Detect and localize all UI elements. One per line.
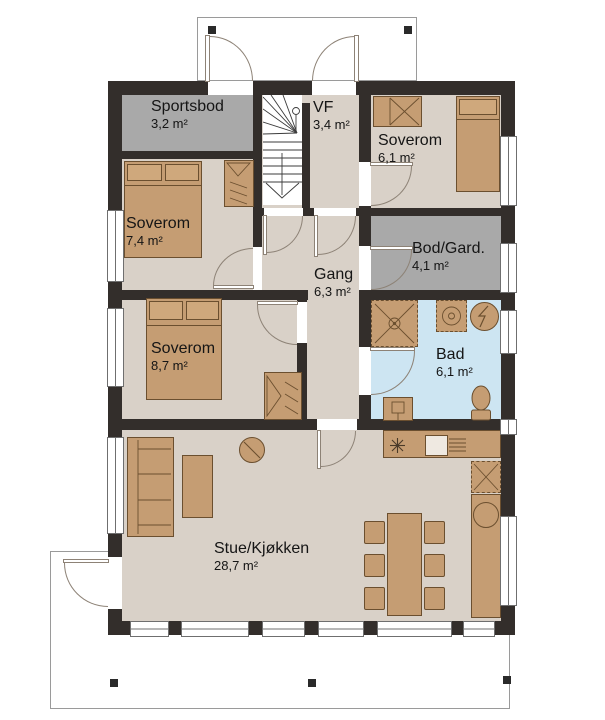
round-basin [473, 502, 499, 528]
window [181, 621, 249, 637]
door-opening [359, 162, 371, 206]
wall-stair-left [253, 95, 262, 247]
chair [424, 521, 445, 544]
room-label-bad: Bad 6,1 m² [436, 345, 473, 380]
pillow [165, 164, 199, 181]
door-opening [312, 81, 356, 95]
pillow [459, 99, 497, 115]
window [500, 516, 517, 606]
room-name: Bad [436, 345, 473, 364]
room-area: 7,4 m² [126, 233, 190, 249]
room-label-stue-kjokken: Stue/Kjøkken 28,7 m² [214, 539, 309, 574]
window [262, 621, 305, 637]
staircase-icon [263, 95, 302, 205]
room-area: 6,1 m² [378, 150, 442, 166]
room-name: Sportsbod [151, 97, 224, 116]
window [377, 621, 452, 637]
room-name: Soverom [378, 131, 442, 150]
window [130, 621, 169, 637]
room-area: 8,7 m² [151, 358, 215, 374]
chair [424, 554, 445, 577]
door-opening [317, 419, 357, 430]
window [463, 621, 495, 637]
door-opening [359, 347, 371, 395]
room-name: Gang [314, 265, 353, 284]
bathroom-sink-icon [383, 397, 413, 421]
terrace-post [503, 676, 511, 684]
wall-bad-top [359, 290, 515, 300]
door-opening [253, 247, 262, 290]
room-label-bod-gard: Bod/Gard. 4,1 m² [412, 239, 485, 274]
water-heater-bolt-icon [470, 302, 499, 331]
wall-stair-right [302, 103, 310, 208]
room-name: Soverom [126, 214, 190, 233]
coffee-table [182, 455, 213, 518]
room-area: 3,2 m² [151, 116, 224, 132]
porch-post [404, 26, 412, 34]
terrace-post [110, 679, 118, 687]
window [107, 308, 124, 387]
room-label-soverom-sw: Soverom 8,7 m² [151, 339, 215, 374]
exterior-wall-bottom [108, 621, 515, 635]
door-opening [264, 208, 303, 216]
floor-plan: Sportsbod 3,2 m² VF 3,4 m² Soverom 6,1 m… [0, 0, 605, 720]
window [107, 210, 124, 282]
dining-table [387, 513, 422, 616]
room-name: Soverom [151, 339, 215, 358]
wall-soverom-ne-bottom [359, 208, 515, 216]
shower-icon [371, 300, 418, 347]
wardrobe-icon [224, 160, 254, 207]
sofa-lines-icon [127, 437, 174, 537]
chair [364, 554, 385, 577]
pillow [127, 164, 162, 181]
pillow [149, 301, 183, 320]
washing-machine-icon [436, 300, 467, 332]
wall-stue-top-left [108, 419, 318, 430]
door-opening [297, 302, 307, 343]
window [500, 310, 517, 354]
wardrobe-icon [373, 96, 422, 127]
chair [424, 587, 445, 610]
door-opening [208, 81, 253, 95]
room-label-gang: Gang 6,3 m² [314, 265, 353, 300]
room-name: Stue/Kjøkken [214, 539, 309, 558]
wardrobe-icon [264, 372, 302, 420]
room-label-soverom-w: Soverom 7,4 m² [126, 214, 190, 249]
pillow [186, 301, 219, 320]
room-name: Bod/Gard. [412, 239, 485, 258]
drainboard-icon [449, 437, 467, 455]
door-opening [314, 208, 356, 216]
cooktop-icon [389, 437, 406, 454]
bed-sheet-line [124, 185, 202, 186]
room-area: 6,3 m² [314, 284, 353, 300]
porch-post [208, 26, 216, 34]
window [500, 136, 517, 206]
window [318, 621, 364, 637]
bed-sheet-line [456, 119, 500, 120]
room-area: 3,4 m² [313, 117, 350, 133]
door-opening [359, 246, 371, 290]
chair [364, 521, 385, 544]
room-area: 28,7 m² [214, 558, 309, 574]
window [500, 243, 517, 293]
door-opening [108, 557, 122, 609]
room-label-vf: VF 3,4 m² [313, 98, 350, 133]
chair [364, 587, 385, 610]
room-name: VF [313, 98, 350, 117]
bed-sheet-line [146, 325, 222, 326]
terrace-post [308, 679, 316, 687]
wood-stove-slash-icon [239, 437, 265, 463]
corner-cabinet-cross-icon [471, 461, 501, 493]
wall-sportsbod-bottom [115, 151, 262, 159]
room-label-sportsbod: Sportsbod 3,2 m² [151, 97, 224, 132]
room-area: 6,1 m² [436, 364, 473, 380]
window [107, 437, 124, 534]
kitchen-sink [425, 435, 448, 456]
room-area: 4,1 m² [412, 258, 485, 274]
room-label-soverom-ne: Soverom 6,1 m² [378, 131, 442, 166]
toilet-icon [469, 385, 493, 421]
window [500, 419, 517, 435]
